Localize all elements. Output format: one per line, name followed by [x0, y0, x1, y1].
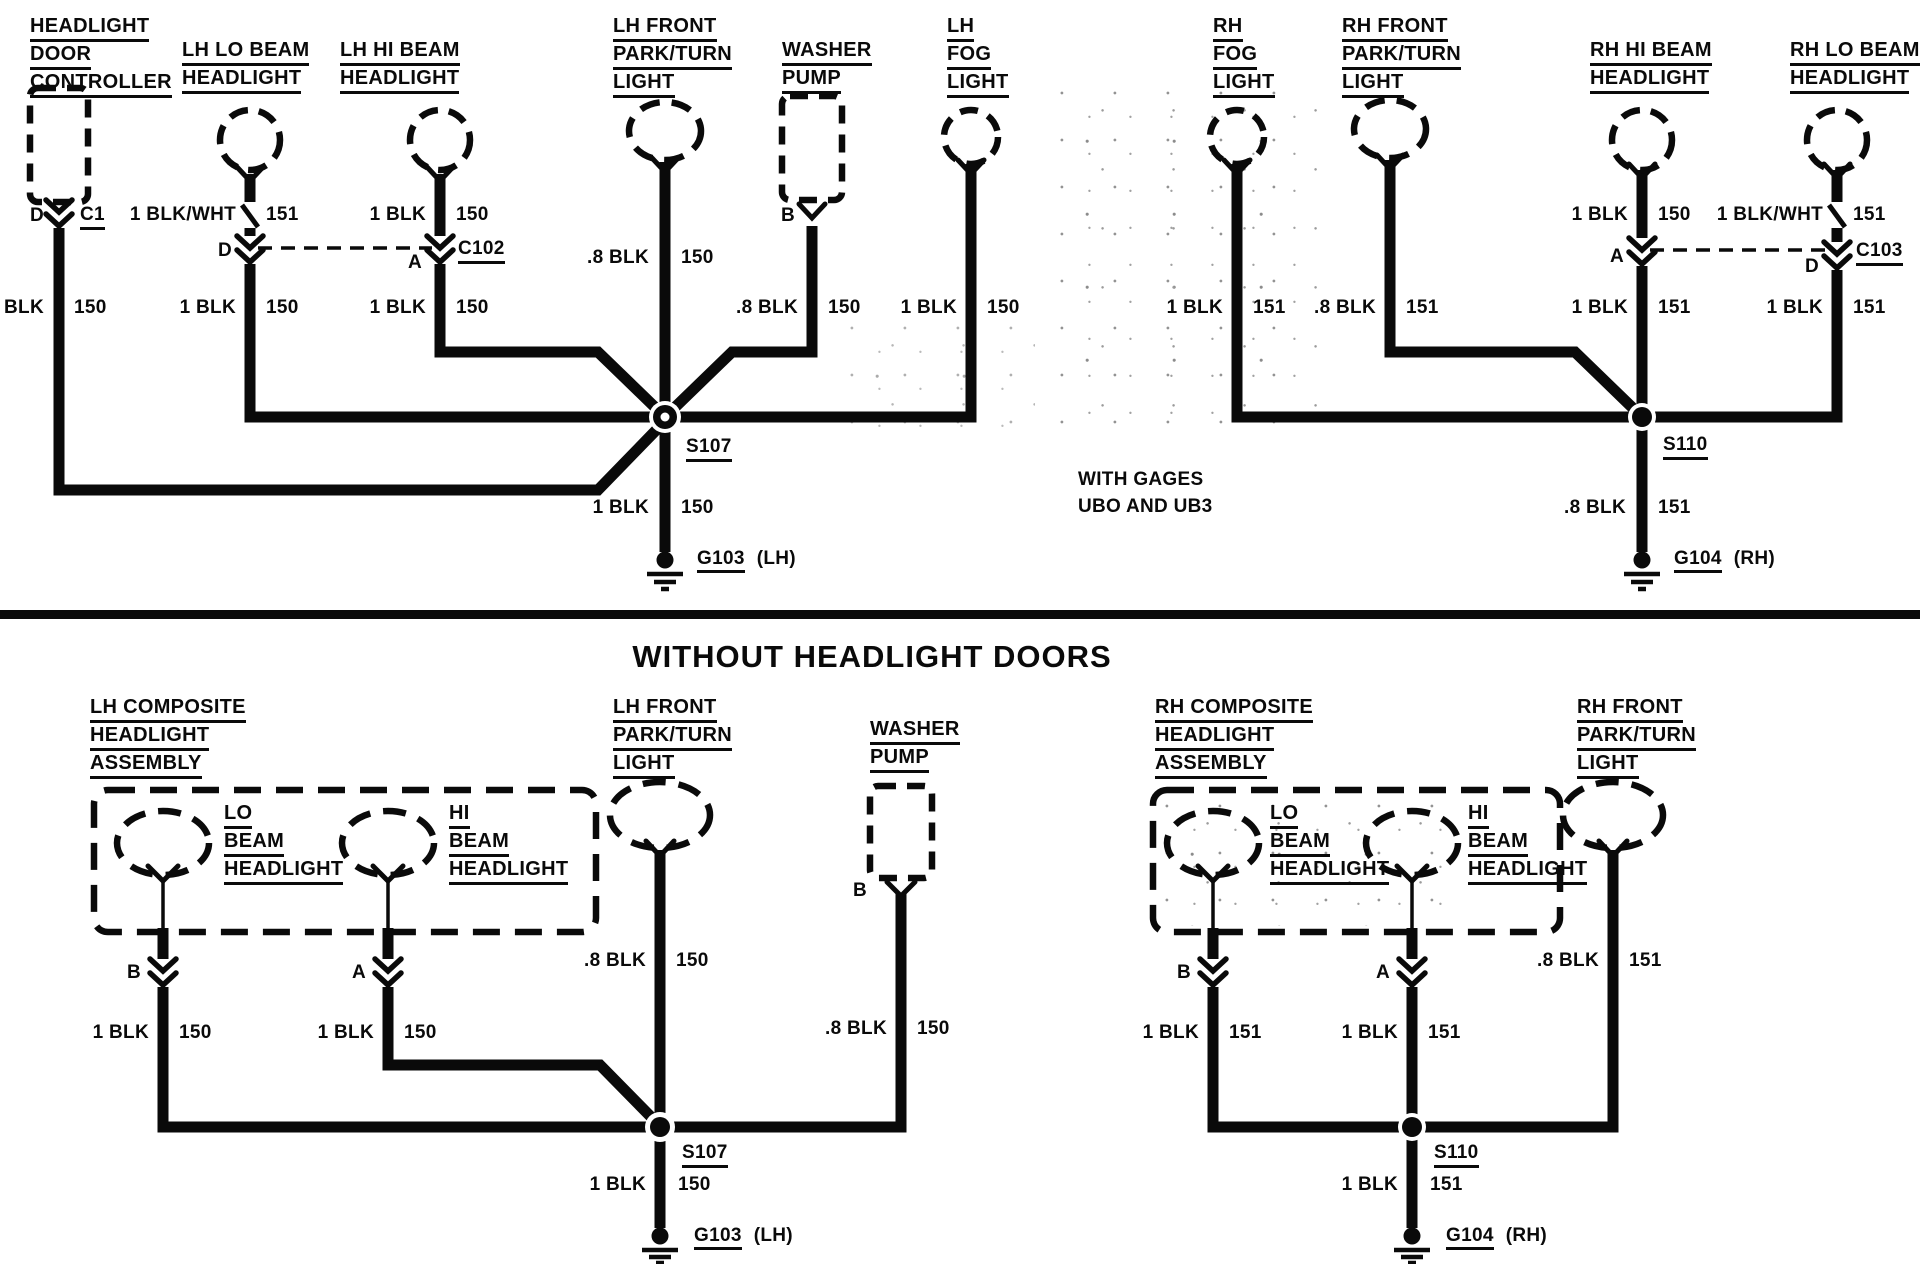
wire-label: 151 — [1853, 297, 1886, 319]
pin-a-lh-hi: A — [408, 252, 422, 274]
label-rh-fog: RH FOG LIGHT — [1213, 16, 1275, 100]
wire-label: 150 — [681, 497, 714, 519]
wire-label: 1 BLK/WHT — [130, 204, 236, 226]
section-divider — [0, 610, 1920, 619]
symbol-rh-park-turn — [1354, 100, 1426, 158]
pin-b-rh-lo: B — [1177, 962, 1191, 984]
label-s107-top: S107 — [686, 436, 732, 462]
label-lh-park-turn: LH FRONT PARK/TURN LIGHT — [613, 16, 732, 100]
pin-a-rh-hi: A — [1376, 962, 1390, 984]
label-s110-top: S110 — [1663, 434, 1708, 460]
label-rh-composite-assembly: RH COMPOSITE HEADLIGHT ASSEMBLY — [1155, 697, 1313, 781]
label-headlight-door-controller: HEADLIGHT DOOR CONTROLLER — [30, 16, 172, 100]
wire-b-rh-park-turn — [1412, 850, 1613, 1127]
label-rh-lo-beam: RH LO BEAM HEADLIGHT — [1790, 40, 1920, 96]
wire-b-washer-pump — [660, 894, 901, 1127]
wire-label: 1 BLK — [1143, 1022, 1199, 1044]
pin-b-lh-lo: B — [127, 962, 141, 984]
wire-label: 151 — [266, 204, 299, 226]
symbol-b-lh-park-turn — [610, 782, 710, 848]
symbol-lh-park-turn — [629, 102, 701, 160]
wire-label: 150 — [404, 1022, 437, 1044]
wire-label: 150 — [917, 1018, 950, 1040]
label-b-rh-hi-beam: HI BEAM HEADLIGHT — [1468, 803, 1587, 887]
label-rh-park-turn: RH FRONT PARK/TURN LIGHT — [1342, 16, 1461, 100]
wire-label: 1 BLK — [370, 297, 426, 319]
wire-lh-lo-beam — [250, 174, 660, 417]
symbol-rh-lo-beam — [1807, 110, 1867, 170]
wire-label: 1 BLK — [590, 1174, 646, 1196]
wire-label: 1 BLK — [1767, 297, 1823, 319]
wire-label: 150 — [266, 297, 299, 319]
wire-label: 1 BLK — [318, 1022, 374, 1044]
label-s107-bottom: S107 — [682, 1142, 728, 1168]
wire-label: .8 BLK — [736, 297, 798, 319]
wiring-diagram-page: HEADLIGHT DOOR CONTROLLER LH LO BEAM HEA… — [0, 0, 1920, 1264]
wire-label: 151 — [1428, 1022, 1461, 1044]
wire-label: 1 BLK — [0, 297, 44, 319]
pin-a-rh-hi: A — [1610, 246, 1624, 268]
wire-label: 151 — [1406, 297, 1439, 319]
wire-label: 1 BLK — [901, 297, 957, 319]
wire-label: 151 — [1629, 950, 1662, 972]
label-g103-top: G103(LH) — [697, 548, 796, 570]
wire-label: 151 — [1253, 297, 1286, 319]
symbol-lh-lo-beam — [220, 110, 280, 170]
connector-c103: C103 — [1856, 240, 1903, 266]
ground-symbol-g103-top — [647, 552, 683, 590]
symbol-rh-hi-beam — [1612, 110, 1672, 170]
wire-label: 1 BLK — [1572, 297, 1628, 319]
label-b-lh-park-turn: LH FRONT PARK/TURN LIGHT — [613, 697, 732, 781]
wire-label: 1 BLK — [593, 497, 649, 519]
pin-b-washer: B — [781, 205, 795, 227]
junction-s107-top — [649, 401, 681, 433]
wire-label: 150 — [179, 1022, 212, 1044]
wire-label: 151 — [1658, 297, 1691, 319]
pin-b-washer-bottom: B — [853, 880, 867, 902]
wire-label: 1 BLK — [93, 1022, 149, 1044]
wire-label: 150 — [987, 297, 1020, 319]
wire-headlight-door-controller — [59, 228, 665, 490]
label-lh-composite-assembly: LH COMPOSITE HEADLIGHT ASSEMBLY — [90, 697, 246, 781]
terminal-v-washer — [799, 204, 825, 218]
symbol-b-rh-lo-beam — [1167, 811, 1259, 875]
terminal-v-b-washer — [887, 882, 915, 896]
wire-label: 150 — [456, 204, 489, 226]
wire-label: .8 BLK — [584, 950, 646, 972]
symbol-b-lh-hi-beam — [342, 811, 434, 875]
label-lh-lo-beam: LH LO BEAM HEADLIGHT — [182, 40, 309, 96]
label-b-washer-pump: WASHER PUMP — [870, 719, 960, 775]
ground-symbol-g104-bottom — [1394, 1228, 1430, 1264]
diagram-canvas — [0, 0, 1920, 1264]
symbol-b-lh-lo-beam — [117, 811, 209, 875]
wire-label: 150 — [681, 247, 714, 269]
junction-s107-bottom — [645, 1112, 675, 1142]
label-b-rh-lo-beam: LO BEAM HEADLIGHT — [1270, 803, 1389, 887]
label-s110-bottom: S110 — [1434, 1142, 1479, 1168]
symbol-lh-fog — [944, 110, 998, 164]
pin-a-lh-hi: A — [352, 962, 366, 984]
section-title: WITHOUT HEADLIGHT DOORS — [632, 640, 1111, 674]
connector-c1: C1 — [80, 204, 105, 230]
symbol-headlight-door-controller — [30, 88, 88, 202]
wire-rh-fog — [1237, 164, 1642, 417]
wire-label: 1 BLK — [370, 204, 426, 226]
wire-label: 150 — [676, 950, 709, 972]
symbol-washer-pump — [782, 96, 842, 200]
wire-label: 151 — [1229, 1022, 1262, 1044]
ground-symbol-g103-bottom — [642, 1228, 678, 1264]
pin-d-lh-lo: D — [218, 240, 232, 262]
label-g104-top: G104(RH) — [1674, 548, 1775, 570]
wire-label: .8 BLK — [1314, 297, 1376, 319]
label-g103-bottom: G103(LH) — [694, 1225, 793, 1247]
symbol-b-washer-pump — [870, 786, 932, 878]
label-g104-bottom: G104(RH) — [1446, 1225, 1547, 1247]
symbol-lh-hi-beam — [410, 110, 470, 170]
wire-label: 151 — [1658, 497, 1691, 519]
wire-label: 151 — [1430, 1174, 1463, 1196]
label-b-lh-hi-beam: HI BEAM HEADLIGHT — [449, 803, 568, 887]
wire-label: 151 — [1853, 204, 1886, 226]
note-with-gages: WITH GAGES UBO AND UB3 — [1078, 466, 1213, 520]
wire-label: 1 BLK — [1342, 1174, 1398, 1196]
wire-label: .8 BLK — [587, 247, 649, 269]
wire-label: 1 BLK — [1342, 1022, 1398, 1044]
wire-label: .8 BLK — [825, 1018, 887, 1040]
pin-d-rh-lo: D — [1805, 256, 1819, 278]
wire-label: 1 BLK — [1167, 297, 1223, 319]
label-rh-hi-beam: RH HI BEAM HEADLIGHT — [1590, 40, 1712, 96]
label-lh-fog: LH FOG LIGHT — [947, 16, 1009, 100]
wire-label: 1 BLK — [180, 297, 236, 319]
label-lh-hi-beam: LH HI BEAM HEADLIGHT — [340, 40, 460, 96]
pin-d-controller: D — [30, 205, 44, 227]
junction-s110-top — [1628, 403, 1656, 431]
wire-label: .8 BLK — [1564, 497, 1626, 519]
wire-label: 150 — [74, 297, 107, 319]
ground-symbol-g104-top — [1624, 552, 1660, 590]
wire-label: 150 — [828, 297, 861, 319]
label-washer-pump: WASHER PUMP — [782, 40, 872, 96]
label-b-rh-park-turn: RH FRONT PARK/TURN LIGHT — [1577, 697, 1696, 781]
wire-label: 1 BLK — [1572, 204, 1628, 226]
label-b-lh-lo-beam: LO BEAM HEADLIGHT — [224, 803, 343, 887]
junction-s110-bottom — [1398, 1113, 1426, 1141]
wire-label: 150 — [456, 297, 489, 319]
connector-c102: C102 — [458, 238, 505, 264]
wire-label: 150 — [678, 1174, 711, 1196]
wire-label: 150 — [1658, 204, 1691, 226]
wire-label: 1 BLK/WHT — [1717, 204, 1823, 226]
wire-rh-park-turn — [1390, 160, 1640, 415]
symbol-rh-fog — [1210, 110, 1264, 164]
wire-label: .8 BLK — [1537, 950, 1599, 972]
